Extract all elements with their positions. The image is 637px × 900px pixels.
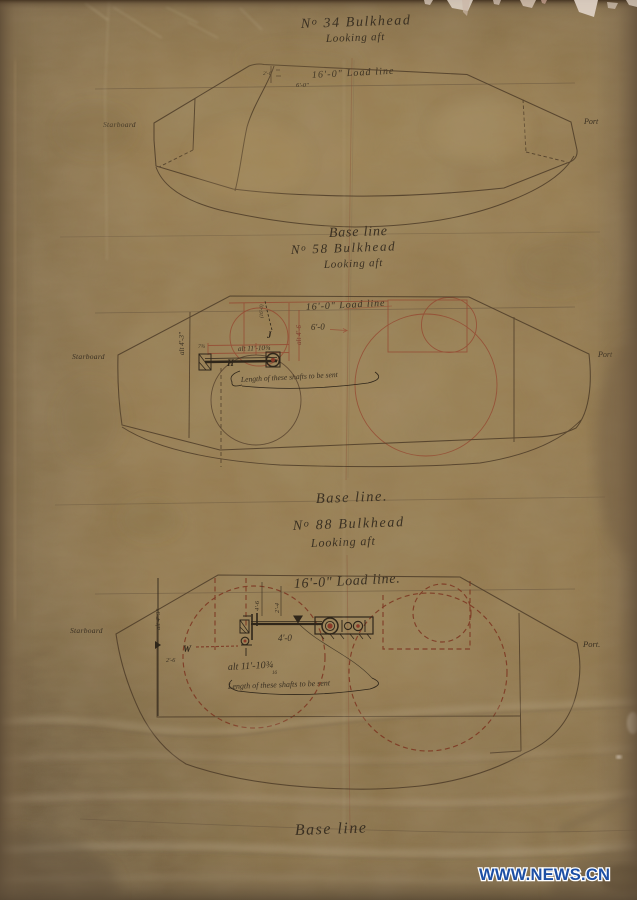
svg-text:2'-6: 2'-6 — [166, 658, 175, 664]
svg-text:(16'-0): (16'-0) — [260, 304, 265, 318]
svg-text:2'-4: 2'-4 — [274, 602, 281, 613]
svg-text:7¾: 7¾ — [198, 344, 205, 350]
svg-text:alt 4'-3": alt 4'-3" — [178, 332, 186, 355]
svg-text:Starboard: Starboard — [72, 352, 105, 361]
svg-text:WWW.NEWS.CN: WWW.NEWS.CN — [479, 865, 610, 884]
svg-text:6'-0": 6'-0" — [296, 82, 309, 89]
svg-text:H: H — [226, 358, 235, 368]
svg-text:Port: Port — [583, 117, 599, 126]
svg-text:Starboard: Starboard — [70, 626, 103, 635]
svg-text:J: J — [266, 330, 272, 340]
svg-text:Looking aft: Looking aft — [323, 257, 384, 271]
svg-text:6'-0: 6'-0 — [311, 322, 326, 332]
svg-text:4'-0: 4'-0 — [278, 633, 292, 643]
svg-text:W: W — [183, 644, 192, 654]
svg-text:4'-6: 4'-6 — [254, 600, 261, 611]
svg-text:Base line.: Base line. — [316, 488, 389, 507]
svg-text:Looking aft: Looking aft — [310, 534, 376, 550]
svg-text:Looking aft: Looking aft — [325, 31, 386, 45]
svg-text:Base line: Base line — [295, 819, 368, 839]
svg-text:alt 4'-3": alt 4'-3" — [155, 608, 162, 630]
svg-text:16: 16 — [272, 671, 278, 676]
